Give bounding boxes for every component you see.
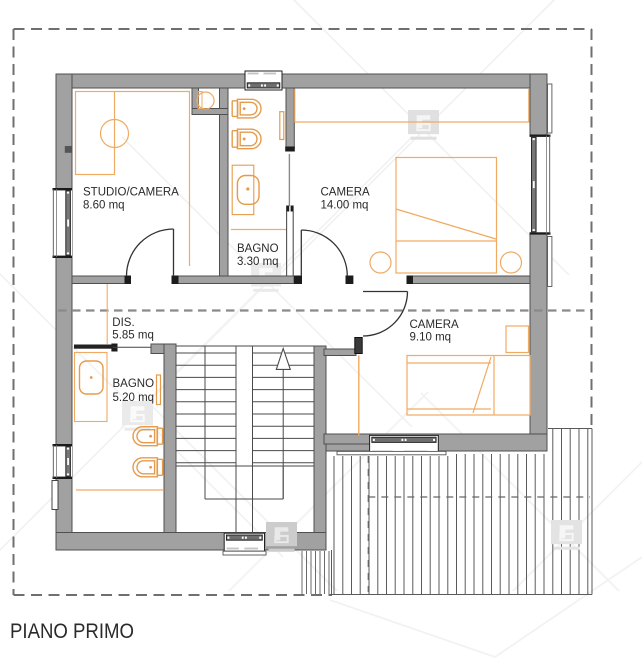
svg-text:CAMERA: CAMERA xyxy=(321,187,371,199)
svg-text:5.20 mq: 5.20 mq xyxy=(113,392,155,404)
svg-text:BAGNO: BAGNO xyxy=(113,378,155,390)
svg-text:BAGNO: BAGNO xyxy=(237,243,279,255)
svg-text:8.60 mq: 8.60 mq xyxy=(83,200,125,212)
svg-text:3.30 mq: 3.30 mq xyxy=(237,256,279,268)
svg-text:14.00 mq: 14.00 mq xyxy=(321,200,369,212)
svg-text:STUDIO/CAMERA: STUDIO/CAMERA xyxy=(83,187,179,199)
svg-text:PIANO PRIMO: PIANO PRIMO xyxy=(10,620,134,643)
svg-text:DIS.: DIS. xyxy=(112,317,134,329)
svg-text:CAMERA: CAMERA xyxy=(410,319,460,331)
svg-text:9.10 mq: 9.10 mq xyxy=(410,331,452,343)
svg-text:5.85 mq: 5.85 mq xyxy=(112,330,154,342)
